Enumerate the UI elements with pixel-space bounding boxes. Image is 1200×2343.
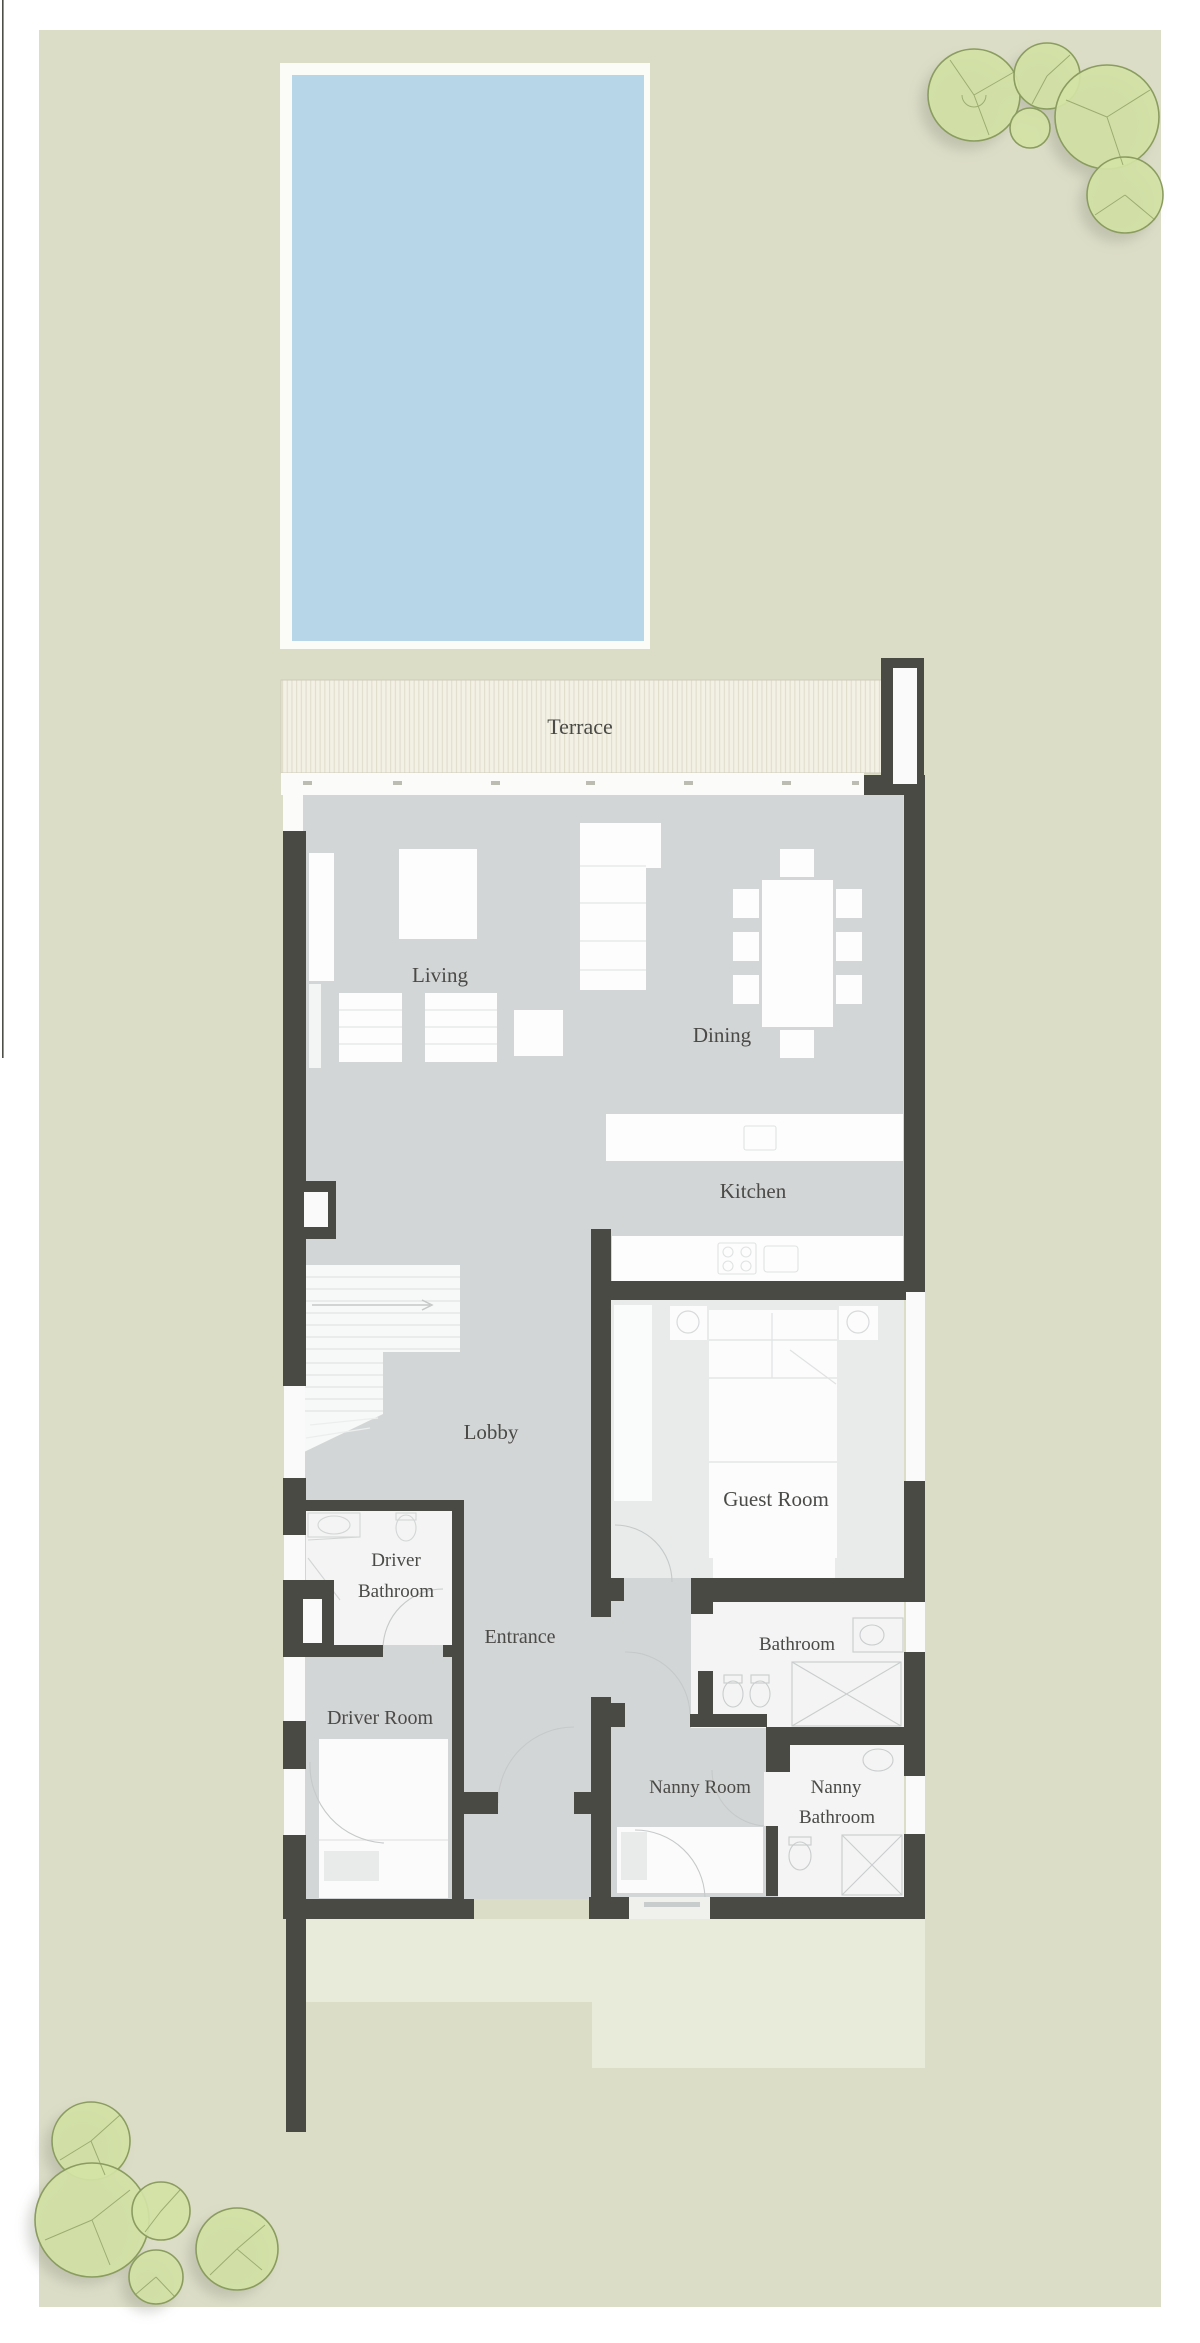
svg-text:Dining: Dining	[693, 1023, 752, 1047]
svg-text:Guest Room: Guest Room	[723, 1487, 829, 1511]
svg-text:Lobby: Lobby	[464, 1420, 519, 1444]
svg-text:Nanny: Nanny	[811, 1777, 862, 1798]
svg-text:Terrace: Terrace	[547, 714, 613, 739]
svg-text:Driver Room: Driver Room	[327, 1707, 434, 1729]
svg-text:Entrance: Entrance	[484, 1626, 555, 1648]
svg-text:Kitchen: Kitchen	[720, 1179, 787, 1203]
svg-text:Bathroom: Bathroom	[358, 1581, 434, 1602]
svg-text:Bathroom: Bathroom	[759, 1634, 835, 1655]
svg-text:Bathroom: Bathroom	[799, 1807, 875, 1828]
svg-text:Driver: Driver	[371, 1550, 421, 1571]
svg-text:Living: Living	[412, 963, 468, 987]
svg-text:Nanny Room: Nanny Room	[649, 1777, 751, 1798]
